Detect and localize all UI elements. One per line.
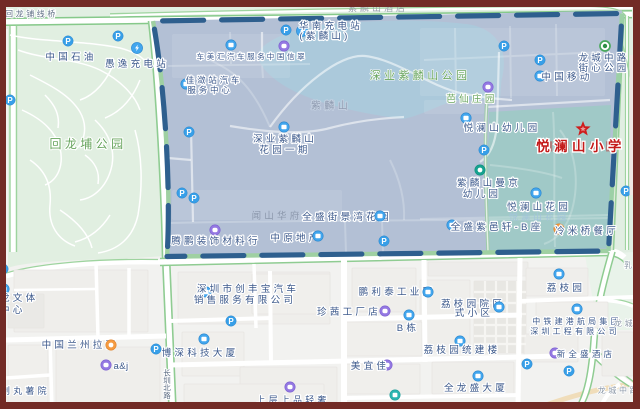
svg-text:销售服务有限公司: 销售服务有限公司 — [194, 294, 296, 306]
svg-text:荔枝园统建楼: 荔枝园统建楼 — [424, 344, 501, 356]
svg-text:中铁建港航局集团: 中铁建港航局集团 — [532, 316, 622, 326]
svg-text:服务中心: 服务中心 — [187, 85, 232, 95]
svg-text:荔枝园: 荔枝园 — [547, 282, 585, 294]
svg-text:博深科技大厦: 博深科技大厦 — [162, 347, 239, 359]
svg-text:B栋: B栋 — [397, 322, 419, 334]
svg-text:冷米桥餐厅: 冷米桥餐厅 — [555, 225, 619, 237]
svg-text:回龙铺线桥: 回龙铺线桥 — [5, 9, 58, 19]
svg-text:悦澜山花园: 悦澜山花园 — [509, 211, 569, 222]
svg-text:深业紫麟山: 深业紫麟山 — [253, 133, 317, 145]
svg-text:式小区: 式小区 — [455, 307, 493, 319]
svg-text:中国石油: 中国石油 — [45, 51, 96, 63]
svg-text:回龙埔公园: 回龙埔公园 — [49, 137, 126, 151]
svg-text:闻山华府: 闻山华府 — [252, 210, 303, 222]
svg-text:全盛紫邑轩-B座: 全盛紫邑轩-B座 — [451, 221, 544, 233]
svg-text:长圳北路: 长圳北路 — [162, 368, 171, 400]
svg-text:佳潋站汽车: 佳潋站汽车 — [186, 75, 243, 85]
svg-text:深圳市创丰宝汽车: 深圳市创丰宝汽车 — [197, 283, 299, 295]
svg-text:车美汇汽车服务: 车美汇汽车服务 — [197, 51, 268, 61]
svg-text:愚逸充电站: 愚逸充电站 — [105, 58, 169, 70]
svg-text:悦澜山小学: 悦澜山小学 — [536, 138, 626, 154]
svg-text:(紫麟山): (紫麟山) — [299, 30, 350, 42]
svg-text:花园一期: 花园一期 — [259, 144, 310, 156]
svg-text:芭仙庄园: 芭仙庄园 — [446, 93, 498, 105]
svg-text:a&j: a&j — [113, 361, 128, 372]
svg-text:美宜佳: 美宜佳 — [351, 360, 389, 372]
svg-text:中国信翠: 中国信翠 — [267, 51, 307, 61]
svg-text:腾鹏装饰材料行: 腾鹏装饰材料行 — [171, 235, 261, 247]
svg-text:紫麟山: 紫麟山 — [311, 99, 351, 112]
svg-text:深圳工程有限公司: 深圳工程有限公司 — [530, 326, 620, 336]
svg-text:幼儿园: 幼儿园 — [463, 188, 501, 200]
svg-text:紫麟山曼京: 紫麟山曼京 — [457, 177, 521, 189]
svg-text:全龙盛大厦: 全龙盛大厦 — [444, 382, 508, 394]
svg-text:悦澜山幼儿园: 悦澜山幼儿园 — [464, 122, 541, 134]
svg-text:新全盛酒店: 新全盛酒店 — [557, 349, 616, 359]
svg-text:珍茜工厂店: 珍茜工厂店 — [317, 306, 381, 318]
svg-text:深业紫麟山公园: 深业紫麟山公园 — [370, 68, 471, 82]
svg-text:创丸薯院: 创丸薯院 — [1, 385, 50, 396]
svg-text:街心公园: 街心公园 — [579, 62, 630, 74]
